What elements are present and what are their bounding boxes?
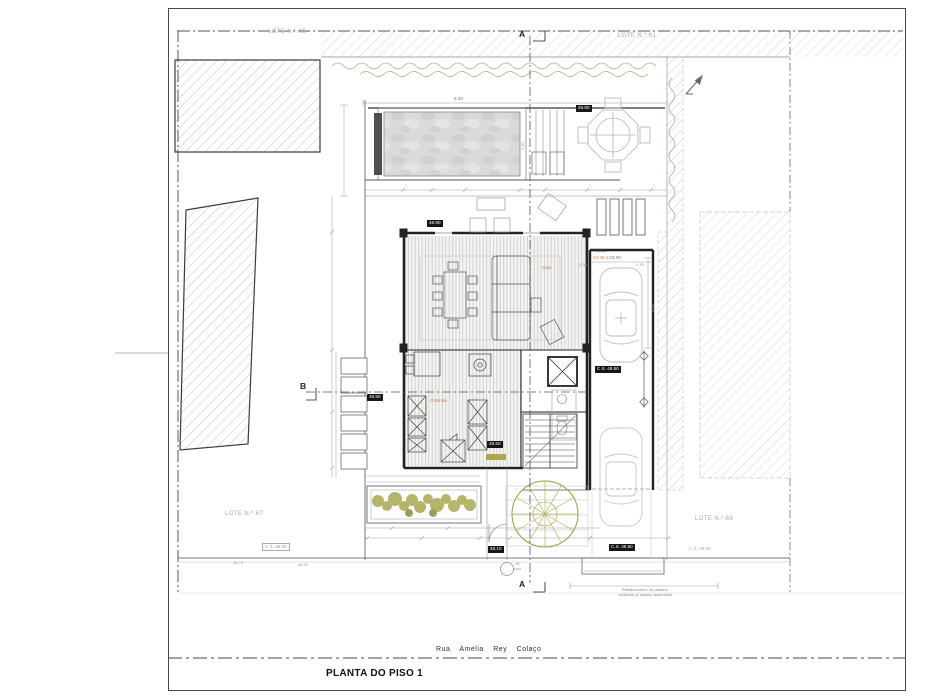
curb-note-line2: existente p/ acesso automóvel bbox=[570, 593, 720, 597]
street-name: Rua Amelia Rey Colaço bbox=[436, 646, 541, 653]
room-area-anexo: 14.35 m2 bbox=[593, 256, 612, 261]
planter-shrubs bbox=[367, 486, 481, 523]
elevation-badge-terrace: 48.90 bbox=[427, 220, 443, 227]
room-label-anexo: Anexo bbox=[593, 249, 606, 254]
dim-offset-b: 0.30 bbox=[636, 263, 644, 267]
manhole-level: 48 bbox=[515, 562, 519, 566]
north-arrow-icon bbox=[686, 76, 702, 94]
tree bbox=[512, 481, 578, 547]
stairs bbox=[523, 414, 577, 468]
dim-pool-width: 2.90 bbox=[521, 142, 525, 150]
dim-garage-depth: 6.00 bbox=[651, 304, 655, 312]
spot-level-a: 48.70 bbox=[233, 561, 243, 565]
pool-deck-slats bbox=[532, 110, 564, 176]
elevation-label-right: C.S. 48.50 bbox=[689, 547, 711, 552]
dim-offset-a: 0.30 bbox=[579, 263, 587, 267]
dim-garage-width: 3.00 bbox=[612, 256, 621, 261]
drawing-sheet: LOTE N.º 65 LOTE N.º 61 LOTE N.º 67 LOTE… bbox=[0, 0, 933, 700]
section-marker-a-bottom: A bbox=[519, 580, 525, 589]
spot-level-b: 48.30 bbox=[298, 563, 308, 567]
lot-label-65: LOTE N.º 65 bbox=[268, 29, 306, 35]
elevation-label-left: C.S. 48.50 bbox=[262, 543, 290, 551]
house-floors bbox=[405, 236, 588, 466]
car-driveway bbox=[600, 428, 642, 526]
room-label-cozinha: Cozinha bbox=[430, 399, 447, 404]
lot-label-67: LOTE N.º 67 bbox=[225, 511, 263, 517]
elevation-badge-stair: 48.50 bbox=[367, 394, 383, 401]
wc-fixtures bbox=[552, 390, 576, 440]
elevation-badge-pool: 48.90 bbox=[576, 105, 592, 112]
lot-label-61: LOTE N.º 61 bbox=[618, 33, 656, 39]
pergola-slats bbox=[597, 199, 645, 235]
car-garage bbox=[600, 268, 642, 362]
dim-pool-length: 8.30 bbox=[454, 97, 463, 102]
lot-label-69: LOTE N.º 69 bbox=[695, 516, 733, 522]
section-marker-a-top: A bbox=[519, 30, 525, 39]
entry-grass bbox=[486, 454, 506, 460]
outdoor-stair-modules bbox=[336, 352, 367, 478]
terrace-furniture bbox=[470, 193, 566, 232]
room-label-sala: Sala bbox=[542, 266, 551, 271]
plan-linework bbox=[0, 0, 933, 700]
elevation-badge-curb: C.S. 48.50 bbox=[609, 544, 635, 551]
section-marker-b: B bbox=[300, 382, 306, 391]
elevator bbox=[548, 357, 577, 386]
drawing-title: PLANTA DO PISO 1 bbox=[326, 669, 423, 679]
elevation-badge-path: 48.10 bbox=[488, 546, 504, 553]
elevation-badge-garage: C.S. 48.50 bbox=[595, 366, 621, 373]
elevation-badge-entry: 48.50 bbox=[487, 441, 503, 448]
swimming-pool bbox=[365, 108, 620, 180]
